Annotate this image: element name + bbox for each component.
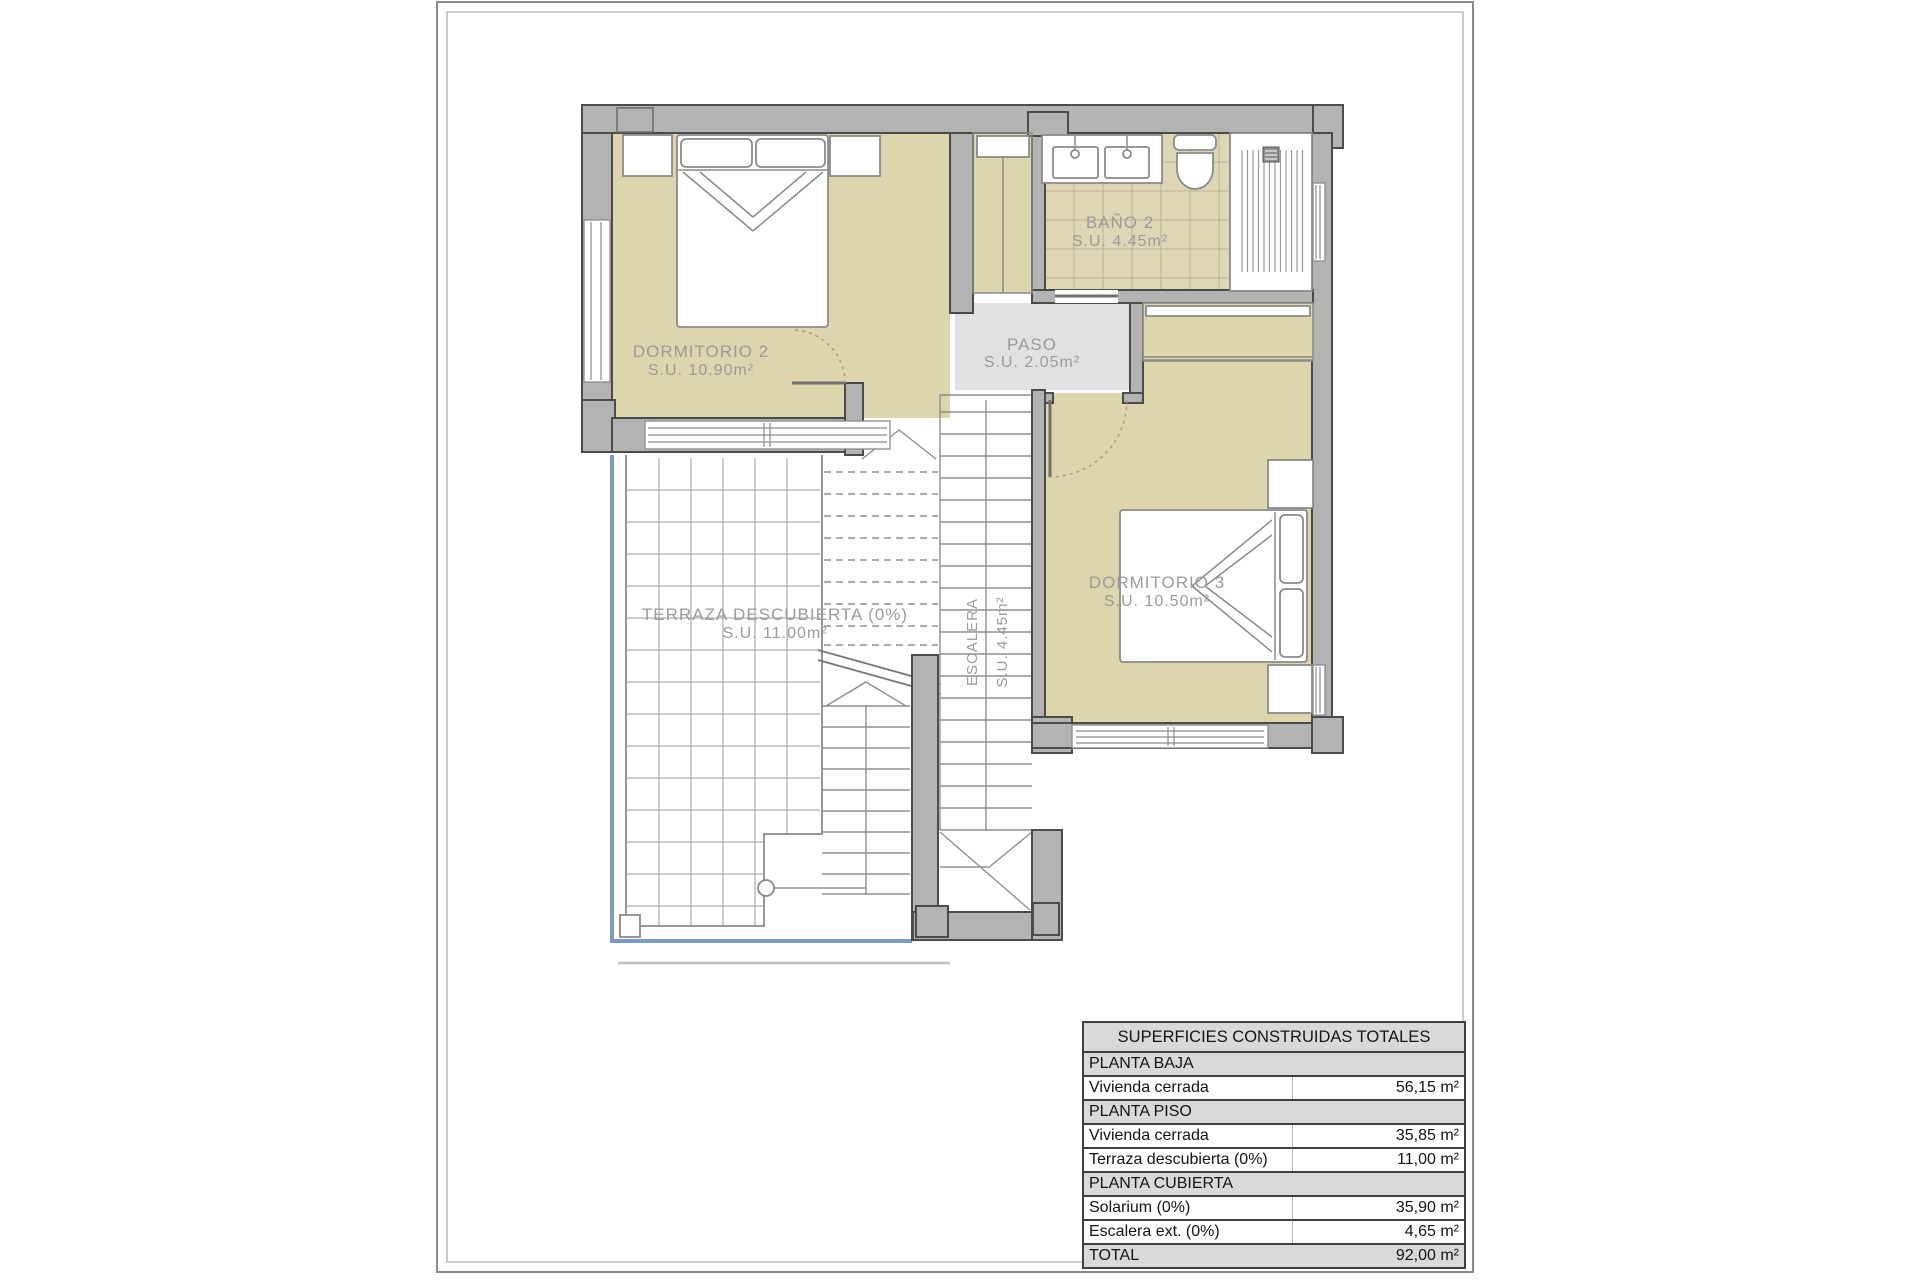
table-row: Escalera ext. (0%) 4,65 m² bbox=[1084, 1221, 1464, 1245]
table-cell-value: 56,15 m² bbox=[1293, 1077, 1464, 1099]
table-cell-value: 35,90 m² bbox=[1293, 1197, 1464, 1219]
bano2-area: S.U. 4.45m² bbox=[1072, 233, 1168, 250]
table-cell-value bbox=[1293, 1173, 1465, 1195]
stair-corner-post-left bbox=[916, 906, 948, 937]
stair-corner-post-right bbox=[1033, 903, 1059, 935]
dormitorio3-area: S.U. 10.50m² bbox=[1104, 593, 1210, 610]
table-row: PLANTA PISO bbox=[1084, 1101, 1464, 1125]
toilet bbox=[1174, 135, 1216, 189]
dormitorio2-nightstand-left bbox=[623, 135, 672, 176]
table-cell-label: PLANTA PISO bbox=[1084, 1101, 1293, 1123]
stair-walkline-start bbox=[758, 880, 774, 896]
table-cell-value bbox=[1293, 1101, 1465, 1123]
table-cell-label: Vivienda cerrada bbox=[1084, 1077, 1293, 1099]
shower bbox=[1230, 133, 1312, 291]
window-dormitorio2-bottom bbox=[645, 421, 890, 449]
chimney-block bbox=[1028, 112, 1068, 136]
table-row: Vivienda cerrada 56,15 m² bbox=[1084, 1077, 1464, 1101]
table-row: PLANTA CUBIERTA bbox=[1084, 1173, 1464, 1197]
pillow bbox=[1280, 515, 1303, 583]
window-dormitorio3-bottom bbox=[1072, 725, 1268, 748]
table-cell-label: TOTAL bbox=[1084, 1245, 1293, 1267]
floor-plan-svg: DORMITORIO 2 S.U. 10.90m² BAÑO 2 S.U. 4.… bbox=[0, 0, 1920, 1280]
escalera-label: ESCALERA bbox=[964, 598, 981, 686]
dormitorio2-bed bbox=[677, 135, 828, 327]
paso-label: PASO bbox=[1007, 335, 1057, 354]
pillow bbox=[681, 139, 752, 167]
terraza-area: S.U. 11.00m² bbox=[722, 625, 827, 642]
table-cell-label: Solarium (0%) bbox=[1084, 1197, 1293, 1219]
bath-tap-1-knob bbox=[1071, 150, 1079, 158]
bath-tap-2-knob bbox=[1123, 150, 1131, 158]
dormitorio3-wardrobe bbox=[1143, 303, 1313, 361]
table-row: TOTAL 92,00 m² bbox=[1084, 1245, 1464, 1267]
dormitorio2-nightstand-right bbox=[830, 136, 880, 176]
dormitorio3-nightstand-bottom bbox=[1268, 665, 1312, 713]
bath-door-opening bbox=[1055, 290, 1118, 303]
table-cell-label: PLANTA CUBIERTA bbox=[1084, 1173, 1293, 1195]
table-cell-label: Vivienda cerrada bbox=[1084, 1125, 1293, 1147]
dormitorio2-label: DORMITORIO 2 bbox=[633, 342, 769, 361]
terrace-corner-post bbox=[620, 915, 640, 937]
window-bath-right bbox=[1313, 183, 1325, 261]
table-cell-value: 35,85 m² bbox=[1293, 1125, 1464, 1147]
pillow bbox=[756, 139, 825, 167]
page: { "rooms": { "dormitorio2": { "name": "D… bbox=[0, 0, 1920, 1280]
surfaces-table: SUPERFICIES CONSTRUIDAS TOTALES PLANTA B… bbox=[1082, 1021, 1466, 1269]
paso-area: S.U. 2.05m² bbox=[984, 354, 1080, 371]
table-cell-value bbox=[1293, 1053, 1465, 1075]
window-dormitorio3-right bbox=[1313, 665, 1325, 715]
table-row: Vivienda cerrada 35,85 m² bbox=[1084, 1125, 1464, 1149]
bano2-label: BAÑO 2 bbox=[1086, 213, 1154, 232]
dormitorio2-area: S.U. 10.90m² bbox=[648, 362, 754, 379]
table-cell-value: 4,65 m² bbox=[1293, 1221, 1464, 1243]
table-cell-value: 92,00 m² bbox=[1293, 1245, 1465, 1267]
table-cell-label: Terraza descubierta (0%) bbox=[1084, 1149, 1293, 1171]
table-row: Solarium (0%) 35,90 m² bbox=[1084, 1197, 1464, 1221]
escalera-area: S.U. 4.45m² bbox=[994, 596, 1011, 687]
window-dormitorio2-left bbox=[584, 220, 610, 382]
table-cell-label: Escalera ext. (0%) bbox=[1084, 1221, 1293, 1243]
table-row: PLANTA BAJA bbox=[1084, 1053, 1464, 1077]
table-cell-value: 11,00 m² bbox=[1293, 1149, 1464, 1171]
table-row: Terraza descubierta (0%) 11,00 m² bbox=[1084, 1149, 1464, 1173]
table-cell-label: PLANTA BAJA bbox=[1084, 1053, 1293, 1075]
surfaces-table-title: SUPERFICIES CONSTRUIDAS TOTALES bbox=[1084, 1023, 1464, 1053]
dormitorio3-nightstand-top bbox=[1268, 460, 1313, 508]
terraza-label: TERRAZA DESCUBIERTA (0%) bbox=[642, 605, 908, 624]
dormitorio3-label: DORMITORIO 3 bbox=[1089, 573, 1225, 592]
pillow bbox=[1280, 589, 1303, 657]
